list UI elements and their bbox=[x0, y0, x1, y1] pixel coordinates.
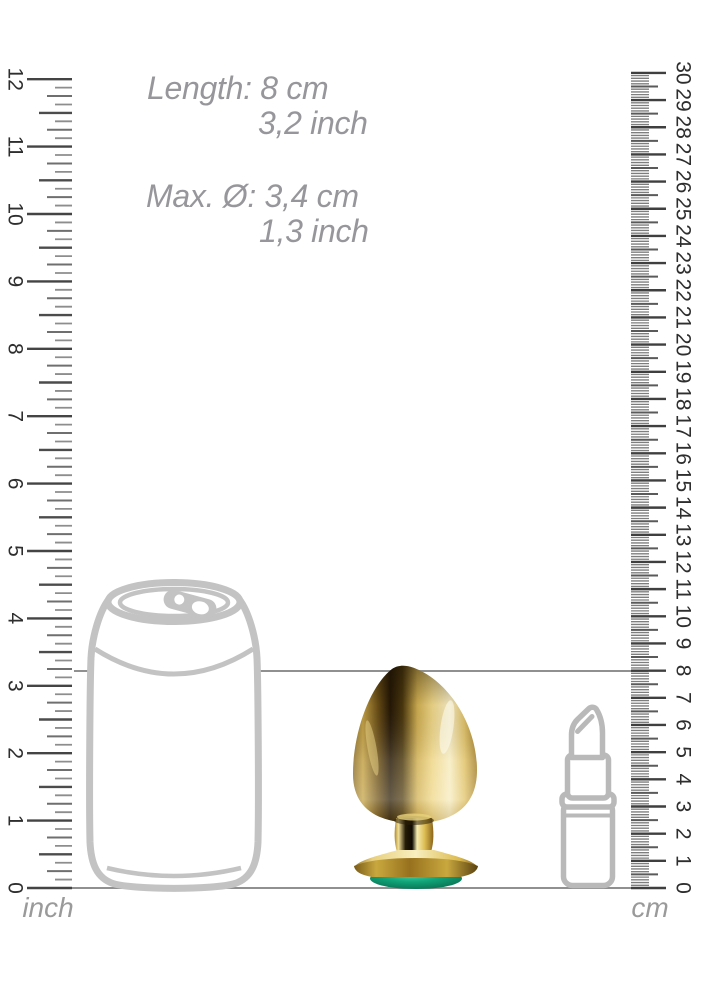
ruler-unit-label: inch bbox=[22, 892, 73, 923]
soda-can-outline bbox=[90, 583, 259, 889]
ruler-number: 11 bbox=[4, 136, 27, 158]
ruler-number: 6 bbox=[4, 478, 27, 490]
can-body bbox=[90, 599, 259, 888]
ruler-number: 1 bbox=[4, 815, 27, 827]
plug-neck-rim bbox=[397, 814, 431, 821]
ruler-number: 26 bbox=[672, 170, 695, 193]
ruler-number: 17 bbox=[672, 414, 695, 437]
ruler-number: 0 bbox=[672, 882, 695, 894]
label-length-cm: Length: 8 cm bbox=[147, 72, 328, 104]
ruler-number: 12 bbox=[672, 550, 695, 573]
lipstick-case bbox=[568, 755, 609, 798]
lipstick-outline bbox=[562, 707, 614, 885]
ruler-number: 16 bbox=[672, 442, 695, 465]
inch-ruler: 0123456789101112inch bbox=[4, 68, 74, 923]
ruler-number: 3 bbox=[4, 680, 27, 692]
ruler-number: 12 bbox=[4, 68, 27, 91]
ruler-number: 24 bbox=[672, 224, 695, 248]
ruler-number: 9 bbox=[672, 638, 695, 650]
ruler-number: 23 bbox=[672, 251, 695, 274]
ruler-number: 29 bbox=[672, 88, 695, 111]
ruler-unit-label: cm bbox=[631, 892, 668, 923]
size-chart-canvas: 0123456789101112inch 0123456789101112131… bbox=[0, 0, 704, 1000]
ruler-number: 28 bbox=[672, 116, 695, 139]
ruler-number: 7 bbox=[672, 692, 695, 704]
ruler-number: 10 bbox=[672, 605, 695, 628]
ruler-number: 8 bbox=[4, 343, 27, 355]
ruler-number: 13 bbox=[672, 523, 695, 546]
ruler-number: 7 bbox=[4, 410, 27, 422]
plug-product-photo bbox=[353, 666, 478, 889]
ruler-number: 21 bbox=[672, 306, 695, 329]
ruler-number: 15 bbox=[672, 469, 695, 492]
ruler-number: 19 bbox=[672, 360, 695, 383]
cm-ruler: 0123456789101112131415161718192021222324… bbox=[631, 61, 695, 923]
ruler-number: 3 bbox=[672, 801, 695, 813]
ruler-number: 4 bbox=[672, 773, 695, 785]
ruler-number: 10 bbox=[4, 202, 27, 225]
ruler-number: 4 bbox=[4, 613, 27, 625]
ruler-number: 9 bbox=[4, 276, 27, 288]
ruler-number: 22 bbox=[672, 279, 695, 302]
ruler-number: 30 bbox=[672, 61, 695, 84]
ruler-number: 18 bbox=[672, 387, 695, 410]
ruler-number: 6 bbox=[672, 719, 695, 731]
ruler-number: 5 bbox=[672, 746, 695, 758]
label-diameter-cm: Max. Ø: 3,4 cm bbox=[146, 180, 359, 212]
label-diameter-inch: 1,3 inch bbox=[259, 215, 369, 247]
ruler-number: 1 bbox=[672, 855, 695, 867]
ruler-number: 25 bbox=[672, 197, 695, 220]
ruler-number: 8 bbox=[672, 665, 695, 677]
ruler-number: 20 bbox=[672, 333, 695, 356]
ruler-number: 2 bbox=[4, 747, 27, 759]
ruler-number: 2 bbox=[672, 828, 695, 840]
size-comparison-scene: 0123456789101112inch 0123456789101112131… bbox=[0, 0, 704, 1000]
ruler-number: 11 bbox=[672, 578, 695, 600]
ruler-number: 14 bbox=[672, 496, 695, 520]
ruler-number: 5 bbox=[4, 545, 27, 557]
ruler-number: 27 bbox=[672, 143, 695, 166]
label-length-inch: 3,2 inch bbox=[258, 107, 368, 139]
